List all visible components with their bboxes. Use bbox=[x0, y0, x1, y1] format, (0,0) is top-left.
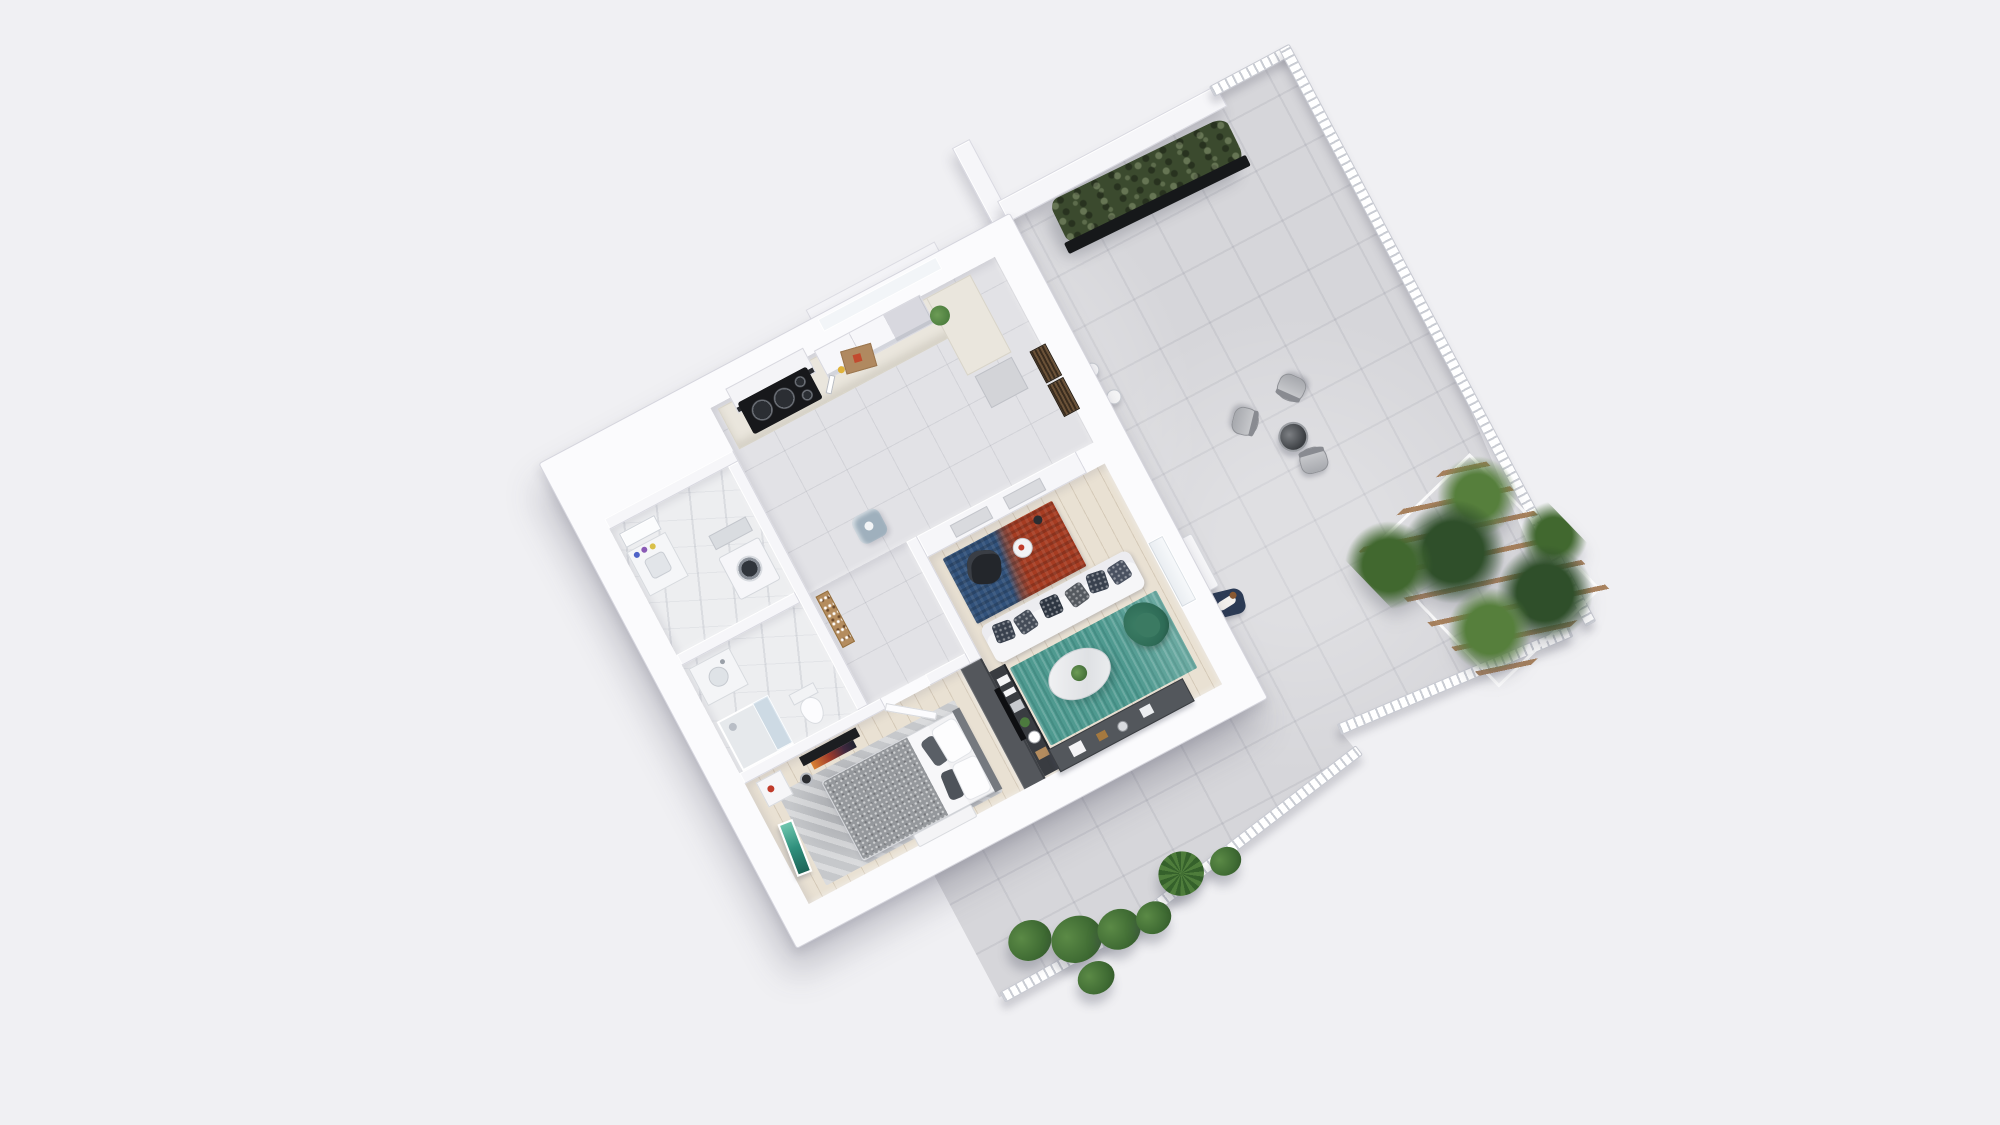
decor-box bbox=[996, 674, 1010, 687]
decor-box bbox=[1139, 704, 1154, 718]
accent-pillow bbox=[1106, 558, 1134, 586]
round-decor bbox=[1115, 719, 1130, 734]
sink-basin bbox=[643, 550, 673, 580]
washer-door bbox=[732, 551, 767, 586]
accent-pillow bbox=[1063, 581, 1091, 609]
accent-pillow bbox=[1085, 569, 1110, 594]
decor-box bbox=[1003, 686, 1016, 697]
table-plant bbox=[1068, 662, 1090, 684]
accent-pillow bbox=[1012, 608, 1040, 636]
toiletry-bottle bbox=[640, 546, 648, 554]
plan bbox=[560, 0, 2000, 1125]
shower-head bbox=[727, 722, 738, 733]
picture-frame bbox=[1068, 740, 1086, 757]
decor-books bbox=[1096, 730, 1109, 742]
floorplan-render bbox=[0, 0, 2000, 1125]
dark-armchair bbox=[966, 549, 1002, 585]
accent-pillow bbox=[1038, 593, 1064, 619]
faucet bbox=[719, 658, 726, 665]
round-mirror bbox=[1026, 728, 1044, 746]
gray-pouf bbox=[849, 506, 890, 547]
sink-basin bbox=[705, 663, 732, 690]
toiletry-bottle bbox=[649, 542, 657, 550]
shower-glass bbox=[752, 695, 793, 751]
toiletry-bottle bbox=[633, 551, 641, 559]
accent-pillow bbox=[991, 619, 1017, 645]
toilet bbox=[788, 683, 830, 731]
